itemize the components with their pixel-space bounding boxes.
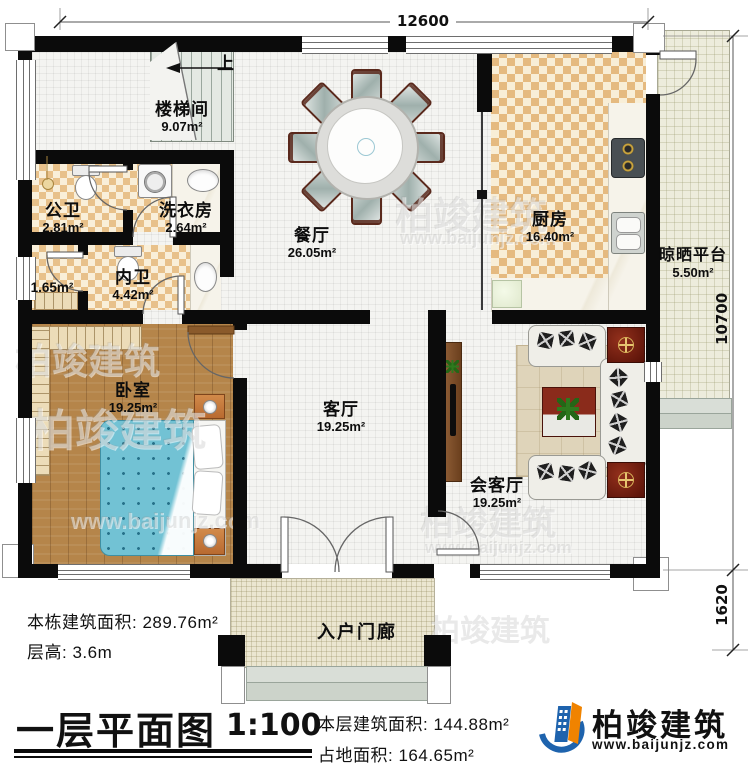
sofa-pillow xyxy=(537,332,555,350)
footprint-area-line: 占地面积: 164.65m² xyxy=(318,741,474,766)
wall xyxy=(392,564,434,578)
room-area: 5.50m² xyxy=(659,266,727,281)
plant-icon xyxy=(557,398,579,420)
dimension-right: 10700 xyxy=(713,297,731,345)
sofa-pillow xyxy=(558,465,575,482)
window xyxy=(302,36,388,54)
wall xyxy=(123,164,133,170)
page-title: 一层平面图 xyxy=(16,700,216,755)
room-name: 入户门廊 xyxy=(317,622,397,642)
window xyxy=(16,418,36,483)
room-name: 卧室 xyxy=(109,381,157,400)
wall xyxy=(18,180,32,257)
room-name: 会客厅 xyxy=(470,476,524,495)
window xyxy=(58,564,190,580)
dining-table-center xyxy=(357,138,375,156)
window xyxy=(644,362,662,382)
wall xyxy=(18,36,302,52)
wall xyxy=(182,310,370,324)
room-label-living: 客厅 19.25m² xyxy=(317,400,365,435)
stair-up-label: 上 xyxy=(217,54,235,73)
stat-label: 层高: xyxy=(27,643,67,662)
ceiling-lamp-icon xyxy=(42,178,54,190)
window xyxy=(406,36,612,54)
room-area: 19.25m² xyxy=(109,401,157,416)
plan-scale: 1:100 xyxy=(226,708,322,743)
room-label-laundry: 洗衣房 2.64m² xyxy=(159,201,213,236)
wall xyxy=(78,291,88,310)
floorplan-canvas: 柏竣建筑 www.baijunjz.com 柏竣建筑 柏竣建筑 www.baij… xyxy=(0,0,750,768)
brand-url: www.baijunjz.com xyxy=(592,737,729,752)
wall xyxy=(646,94,660,362)
laundry-sink-icon xyxy=(187,169,219,192)
wall xyxy=(18,310,143,324)
room-area: 9.07m² xyxy=(155,120,209,135)
wall xyxy=(428,310,446,517)
kitchen-sink-icon xyxy=(611,212,645,254)
stat-value: 3.6m xyxy=(72,643,112,662)
porch-column xyxy=(218,635,245,666)
floor-height-line: 层高: 3.6m xyxy=(27,638,112,663)
toilet-icon xyxy=(72,165,100,200)
room-label-closet: 1.65m² xyxy=(31,279,74,295)
room-area: 2.64m² xyxy=(159,221,213,236)
brand-logo-icon xyxy=(534,698,590,758)
room-area: 19.25m² xyxy=(317,420,365,435)
wall xyxy=(78,245,88,255)
washing-machine-icon xyxy=(138,164,172,198)
stat-label: 占地面积: xyxy=(318,746,393,765)
watermark-url: www.baijunjz.com xyxy=(425,538,572,558)
stat-value: 289.76m² xyxy=(142,613,218,632)
tv-icon xyxy=(450,384,456,436)
room-label-porch: 入户门廊 xyxy=(317,622,397,642)
porch-column xyxy=(424,635,451,666)
wall xyxy=(18,150,234,164)
room-name: 公卫 xyxy=(42,201,83,220)
stat-label: 本层建筑面积: xyxy=(318,715,428,734)
side-table xyxy=(607,462,645,498)
building-area-line: 本栋建筑面积: 289.76m² xyxy=(27,608,218,633)
porch-column-base xyxy=(427,666,451,704)
room-area: 26.05m² xyxy=(288,246,336,261)
corner-pier xyxy=(633,23,665,53)
room-name: 厨房 xyxy=(526,210,574,229)
room-name: 晾晒平台 xyxy=(659,247,727,265)
room-name: 客厅 xyxy=(317,400,365,419)
platform-step xyxy=(655,413,732,429)
dimension-right-lower: 1620 xyxy=(713,583,731,627)
up-text: 上 xyxy=(217,54,235,73)
room-name: 洗衣房 xyxy=(159,201,213,220)
wall xyxy=(190,564,282,578)
room-label-drying-platform: 晾晒平台 5.50m² xyxy=(659,247,727,280)
room-area: 2.81m² xyxy=(42,221,83,236)
sofa-pillow xyxy=(558,330,575,347)
window xyxy=(480,564,610,580)
room-name: 餐厅 xyxy=(288,226,336,245)
wall xyxy=(18,483,32,578)
watermark-url: www.baijunjz.com xyxy=(70,508,260,534)
room-label-inner-bath: 内卫 4.42m² xyxy=(112,268,153,303)
stove-icon xyxy=(611,138,645,178)
plant-icon xyxy=(446,360,459,373)
room-label-bedroom: 卧室 19.25m² xyxy=(109,381,157,416)
wall xyxy=(470,564,480,578)
room-label-dining: 餐厅 26.05m² xyxy=(288,226,336,261)
room-area: 16.40m² xyxy=(526,230,574,245)
wall xyxy=(123,210,133,232)
wall xyxy=(233,324,247,330)
title-underline xyxy=(14,749,312,753)
wall xyxy=(492,310,646,324)
room-label-public-bath: 公卫 2.81m² xyxy=(42,201,83,236)
dimension-top: 12600 xyxy=(390,12,456,30)
porch-column-base xyxy=(221,666,245,704)
room-name: 内卫 xyxy=(112,268,153,287)
wall xyxy=(233,378,247,564)
porch-step xyxy=(246,682,430,701)
side-table xyxy=(607,327,645,363)
window xyxy=(16,60,36,180)
kitchen-right-counter xyxy=(608,103,647,310)
stat-value: 144.88m² xyxy=(433,715,509,734)
room-area: 1.65m² xyxy=(31,280,74,295)
room-name: 楼梯间 xyxy=(155,100,209,119)
room-label-reception: 会客厅 19.25m² xyxy=(470,476,524,511)
bathroom-sink-icon xyxy=(194,262,217,292)
title-underline xyxy=(14,756,312,758)
kitchen-cabinet xyxy=(492,280,522,308)
wall xyxy=(220,150,234,277)
room-area: 4.42m² xyxy=(112,288,153,303)
corner-pier xyxy=(5,23,35,51)
floor-area-line: 本层建筑面积: 144.88m² xyxy=(318,710,509,735)
wall xyxy=(646,382,660,578)
stat-label: 本栋建筑面积: xyxy=(27,613,137,632)
stat-value: 164.65m² xyxy=(398,746,474,765)
sliding-door-handle xyxy=(477,190,487,199)
room-area: 19.25m² xyxy=(470,496,524,511)
sliding-door-track xyxy=(481,112,483,310)
wall xyxy=(18,300,32,418)
room-label-kitchen: 厨房 16.40m² xyxy=(526,210,574,245)
room-label-stairwell: 楼梯间 9.07m² xyxy=(155,100,209,135)
wall xyxy=(388,36,406,52)
watermark-brand: 柏竣建筑 xyxy=(15,332,159,384)
